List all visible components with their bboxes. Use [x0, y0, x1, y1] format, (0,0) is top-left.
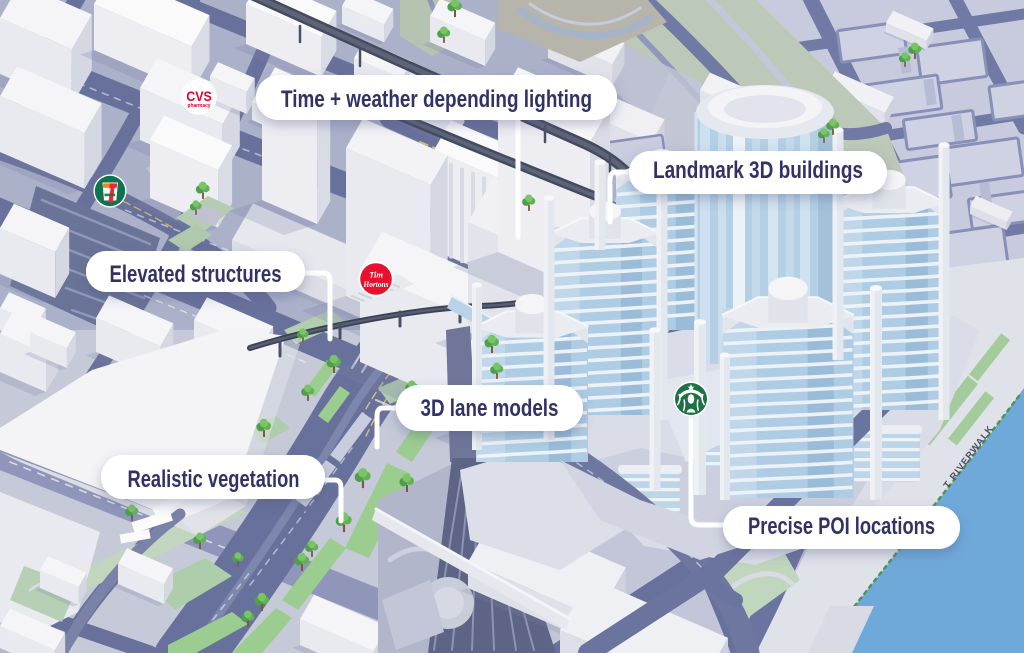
svg-text:Landmark 3D buildings: Landmark 3D buildings — [653, 157, 863, 184]
svg-text:Realistic vegetation: Realistic vegetation — [128, 466, 300, 493]
svg-text:Elevated structures: Elevated structures — [110, 261, 282, 288]
svg-text:3D lane models: 3D lane models — [421, 395, 559, 422]
svg-text:Hortons: Hortons — [363, 279, 389, 289]
svg-text:pharmacy: pharmacy — [188, 103, 212, 109]
svg-text:CVS: CVS — [186, 89, 212, 104]
svg-text:Tim: Tim — [369, 270, 383, 280]
svg-text:Time + weather depending light: Time + weather depending lighting — [281, 86, 592, 113]
svg-text:Precise POI locations: Precise POI locations — [748, 513, 935, 540]
